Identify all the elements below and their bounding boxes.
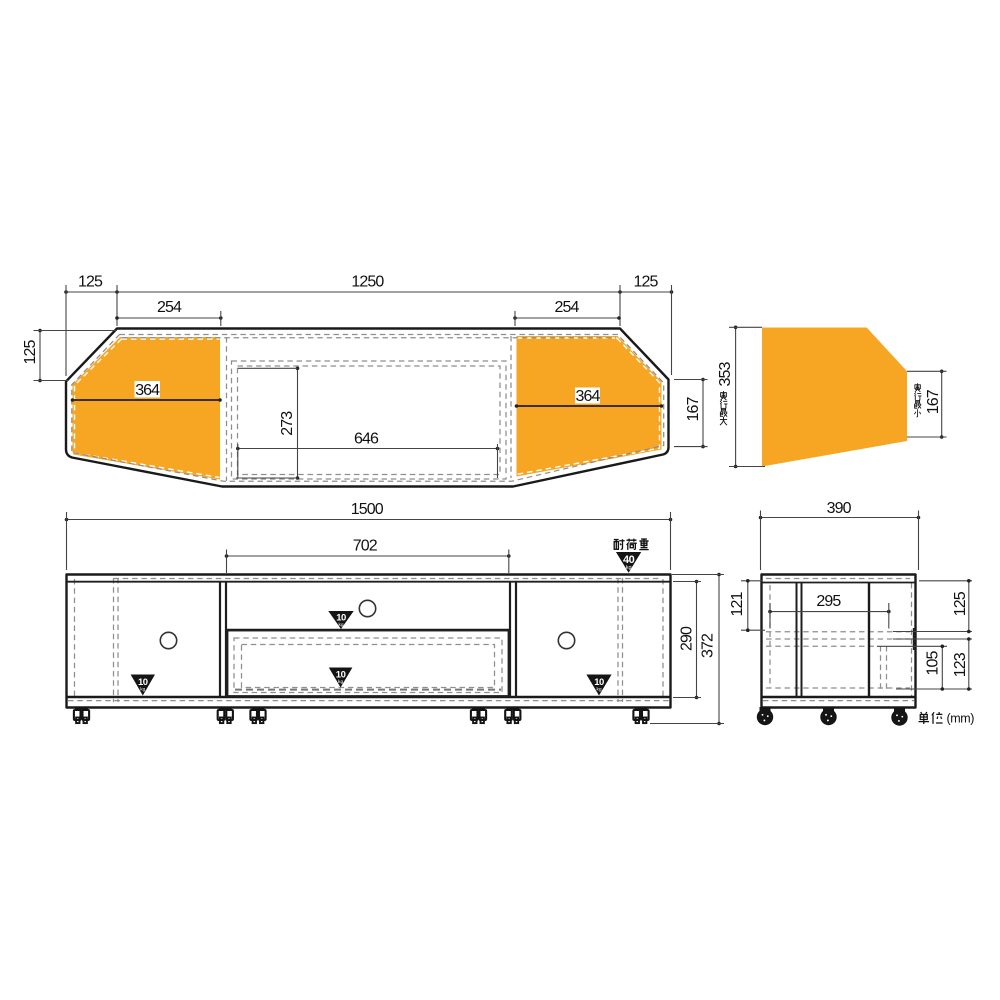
svg-text:125: 125 [952,591,969,616]
svg-text:125: 125 [78,274,103,291]
svg-text:167: 167 [925,389,942,414]
svg-text:364: 364 [576,388,601,405]
svg-text:702: 702 [353,537,378,554]
svg-text:kg: kg [140,686,145,692]
svg-text:(mm): (mm) [947,712,975,726]
svg-text:273: 273 [279,411,296,436]
svg-text:121: 121 [729,592,746,617]
svg-text:353: 353 [717,362,734,387]
svg-text:125: 125 [634,274,659,291]
svg-text:kg: kg [596,686,601,692]
svg-text:646: 646 [354,431,379,448]
svg-text:372: 372 [700,633,717,658]
svg-text:1250: 1250 [351,273,384,290]
svg-text:254: 254 [555,299,580,316]
svg-text:kg: kg [626,565,632,571]
svg-text:290: 290 [679,626,696,651]
svg-text:364: 364 [135,382,160,399]
svg-text:254: 254 [157,299,182,316]
svg-text:105: 105 [925,651,942,676]
svg-text:10: 10 [336,612,346,623]
svg-text:167: 167 [685,397,702,422]
svg-text:390: 390 [827,500,852,517]
svg-text:295: 295 [816,593,841,610]
svg-text:10: 10 [594,677,604,688]
svg-text:kg: kg [338,622,343,628]
svg-text:kg: kg [338,679,343,685]
svg-text:10: 10 [138,677,148,688]
svg-text:10: 10 [336,670,346,681]
svg-text:123: 123 [952,652,969,677]
svg-text:125: 125 [22,340,39,365]
svg-text:40: 40 [623,554,635,566]
svg-text:1500: 1500 [351,501,384,518]
